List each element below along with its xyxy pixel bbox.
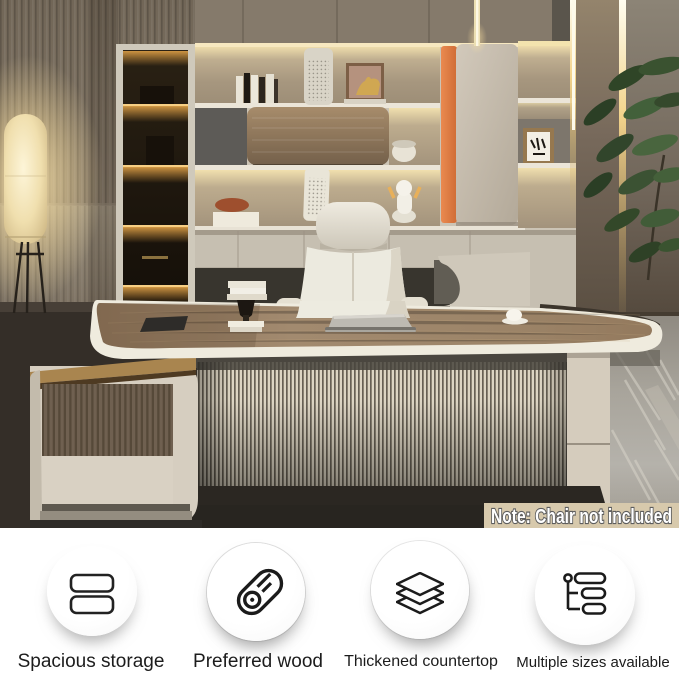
svg-text:Note: Chair not included: Note: Chair not included	[491, 505, 672, 528]
